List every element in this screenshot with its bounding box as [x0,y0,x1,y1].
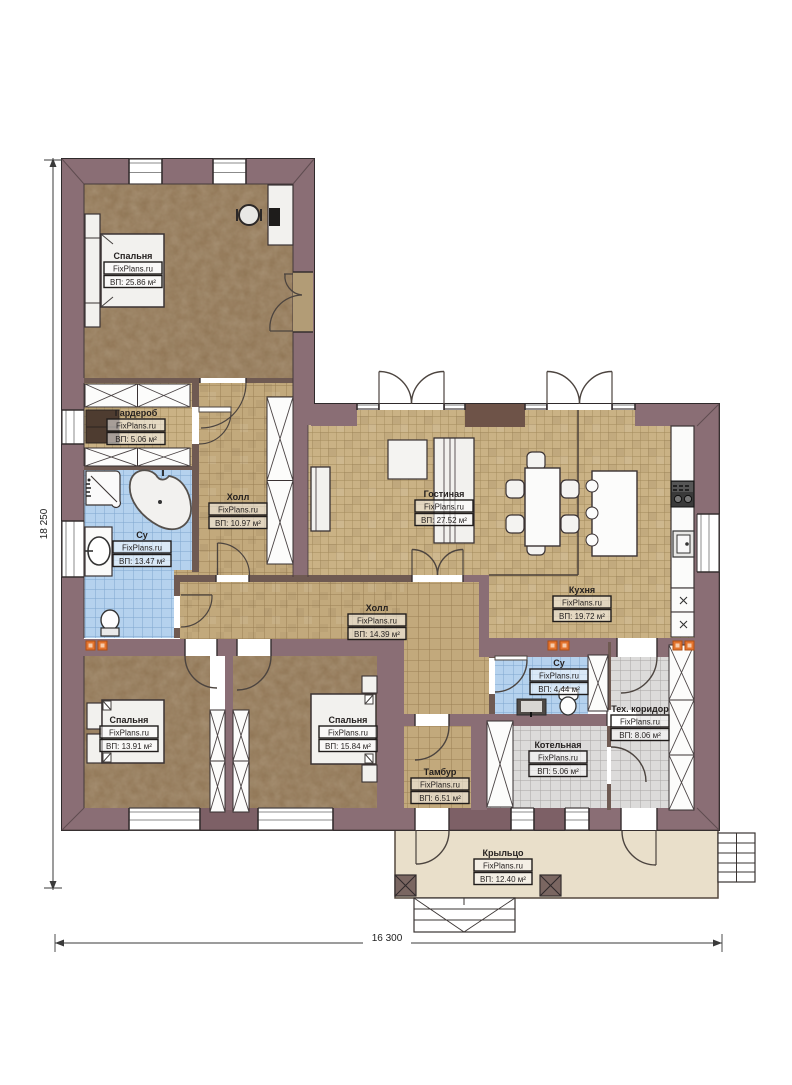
svg-text:FixPlans.ru: FixPlans.ru [357,616,397,625]
svg-text:Котельная: Котельная [534,740,581,750]
svg-text:FixPlans.ru: FixPlans.ru [218,505,258,514]
svg-text:18 250: 18 250 [39,508,50,539]
svg-text:FixPlans.ru: FixPlans.ru [113,264,153,273]
svg-text:ВП: 5.06 м²: ВП: 5.06 м² [115,435,157,444]
svg-text:Су: Су [553,658,565,668]
svg-text:Кухня: Кухня [569,585,595,595]
svg-text:FixPlans.ru: FixPlans.ru [420,780,460,789]
svg-text:ВП: 13.91 м²: ВП: 13.91 м² [106,742,152,751]
svg-text:Тех. коридор: Тех. коридор [611,704,669,714]
svg-text:FixPlans.ru: FixPlans.ru [109,728,149,737]
svg-text:FixPlans.ru: FixPlans.ru [620,717,660,726]
svg-text:FixPlans.ru: FixPlans.ru [539,671,579,680]
svg-text:Гостиная: Гостиная [424,489,465,499]
svg-text:Тамбур: Тамбур [424,767,457,777]
svg-text:16 300: 16 300 [372,933,403,944]
svg-text:FixPlans.ru: FixPlans.ru [424,502,464,511]
svg-text:ВП: 19.72 м²: ВП: 19.72 м² [559,612,605,621]
svg-text:ВП: 8.06 м²: ВП: 8.06 м² [619,731,661,740]
svg-text:FixPlans.ru: FixPlans.ru [538,753,578,762]
svg-text:Холл: Холл [366,603,389,613]
svg-text:ВП: 14.39 м²: ВП: 14.39 м² [354,630,400,639]
svg-text:ВП: 12.40 м²: ВП: 12.40 м² [480,875,526,884]
svg-text:Гардероб: Гардероб [115,408,158,418]
svg-text:ВП: 15.84 м²: ВП: 15.84 м² [325,742,371,751]
svg-text:ВП: 13.47 м²: ВП: 13.47 м² [119,557,165,566]
svg-text:FixPlans.ru: FixPlans.ru [116,421,156,430]
svg-text:ВП: 5.06 м²: ВП: 5.06 м² [537,767,579,776]
svg-text:Су: Су [136,530,148,540]
svg-text:ВП: 10.97 м²: ВП: 10.97 м² [215,519,261,528]
svg-text:Холл: Холл [227,492,250,502]
svg-text:Спальня: Спальня [110,715,149,725]
svg-text:ВП: 4.44 м²: ВП: 4.44 м² [538,685,580,694]
svg-text:FixPlans.ru: FixPlans.ru [562,598,602,607]
svg-text:ВП: 6.51 м²: ВП: 6.51 м² [419,794,461,803]
svg-text:Крыльцо: Крыльцо [483,848,524,858]
svg-text:ВП: 25.86 м²: ВП: 25.86 м² [110,278,156,287]
svg-text:FixPlans.ru: FixPlans.ru [328,728,368,737]
svg-text:Спальня: Спальня [114,251,153,261]
svg-text:Спальня: Спальня [329,715,368,725]
svg-text:ВП: 27.52 м²: ВП: 27.52 м² [421,516,467,525]
svg-text:FixPlans.ru: FixPlans.ru [483,861,523,870]
svg-text:FixPlans.ru: FixPlans.ru [122,543,162,552]
